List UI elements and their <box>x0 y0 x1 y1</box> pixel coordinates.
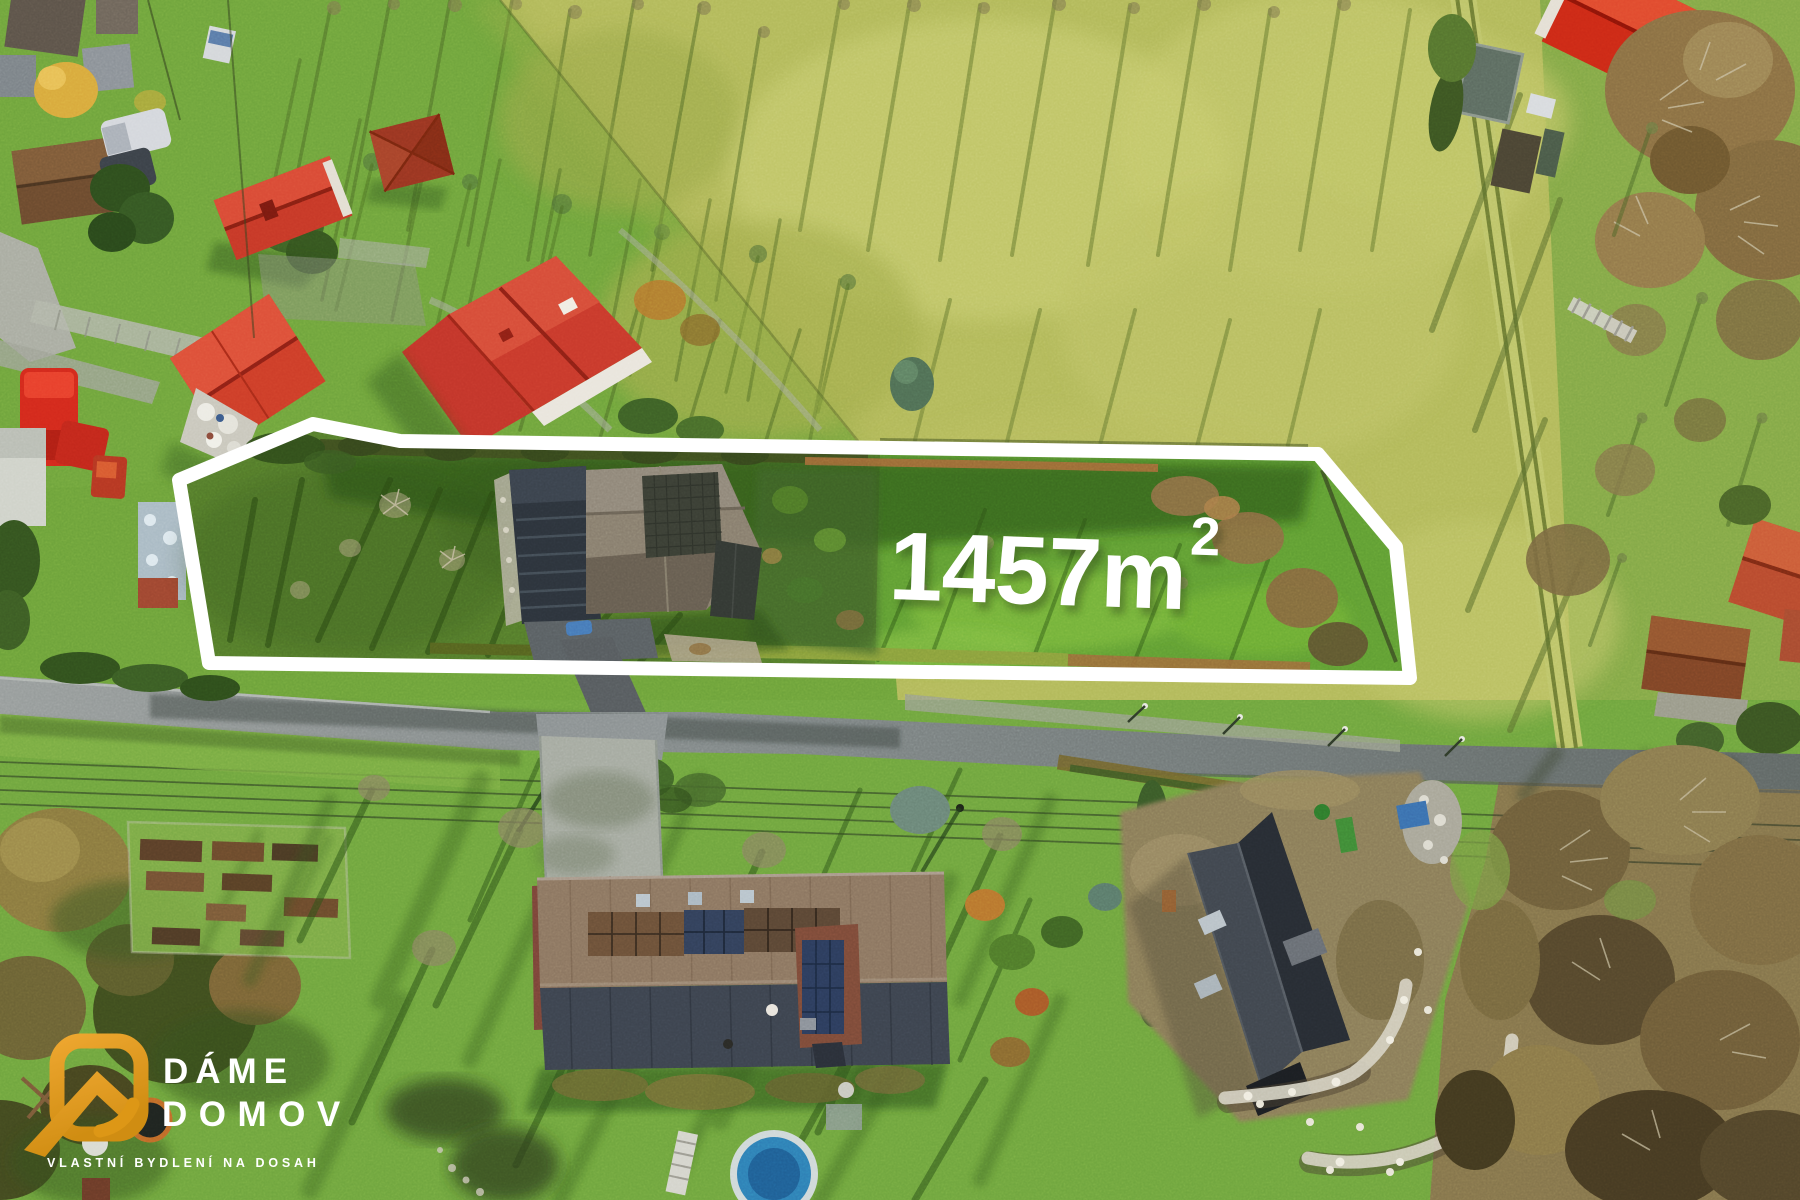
svg-text:2: 2 <box>1189 506 1221 567</box>
svg-text:VLASTNÍ BYDLENÍ NA DOSAH: VLASTNÍ BYDLENÍ NA DOSAH <box>47 1155 320 1170</box>
svg-text:1457m: 1457m <box>887 511 1188 630</box>
svg-text:DOMOV: DOMOV <box>162 1095 352 1134</box>
svg-text:DÁME: DÁME <box>163 1051 294 1091</box>
